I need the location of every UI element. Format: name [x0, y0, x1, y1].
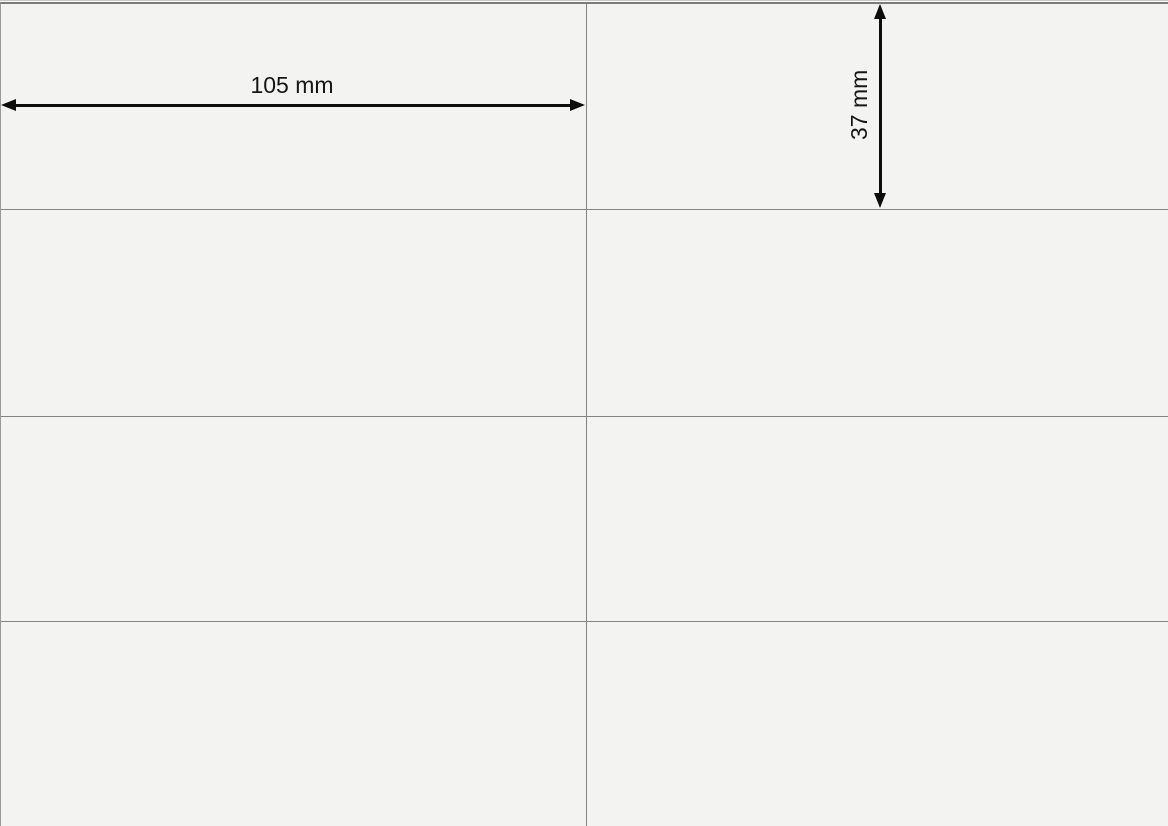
height-dimension-line	[879, 16, 882, 196]
height-dimension-label: 37 mm	[847, 70, 871, 140]
label-cell-r2c1	[1, 210, 587, 417]
label-cell-r4c2	[587, 622, 1168, 826]
label-cell-r4c1	[1, 622, 587, 826]
label-cell-r1c1	[1, 4, 587, 210]
arrowhead-right-icon	[570, 99, 585, 111]
arrowhead-down-icon	[874, 193, 886, 208]
label-cell-r3c1	[1, 417, 587, 622]
label-sheet-preview: 105 mm 37 mm	[0, 0, 1168, 826]
label-cell-r3c2	[587, 417, 1168, 622]
label-cell-r1c2	[587, 4, 1168, 210]
label-cell-r2c2	[587, 210, 1168, 417]
label-sheet-grid	[0, 2, 1168, 826]
width-dimension-label: 105 mm	[222, 73, 362, 97]
width-dimension-line	[13, 104, 573, 107]
